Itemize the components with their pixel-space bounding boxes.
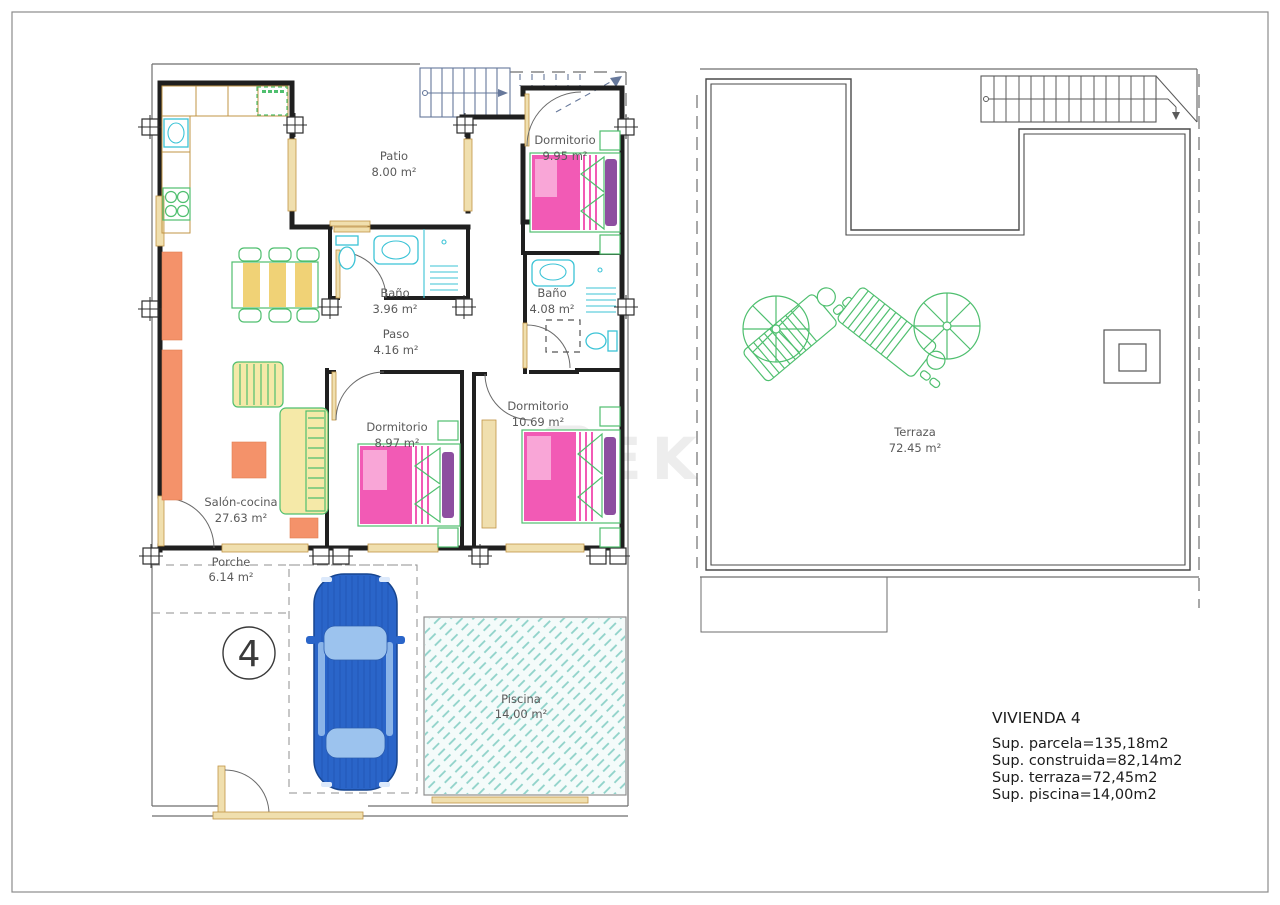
- toilet-icon: [586, 333, 606, 349]
- svg-text:Salón-cocina: Salón-cocina: [204, 495, 277, 509]
- wardrobe: [482, 420, 496, 528]
- summary-line-piscina: Sup. piscina=14,00m2: [992, 787, 1157, 803]
- summary-title: VIVIENDA 4: [992, 709, 1081, 727]
- plan-drawing: EKCE: [0, 0, 1280, 905]
- sink-icon: [374, 236, 418, 264]
- parasol-1: [743, 296, 809, 362]
- svg-text:3.96 m²: 3.96 m²: [372, 302, 417, 316]
- label-piscina: Piscina 14,00 m²: [495, 692, 547, 721]
- svg-text:Porche: Porche: [212, 555, 251, 569]
- svg-text:Baño: Baño: [537, 286, 566, 300]
- sideboard-1: [162, 252, 182, 340]
- svg-text:8.00 m²: 8.00 m²: [371, 165, 416, 179]
- svg-text:8.97 m²: 8.97 m²: [374, 436, 419, 450]
- dining-table: [232, 248, 319, 322]
- unit-number-badge: 4: [223, 627, 275, 679]
- svg-text:Dormitorio: Dormitorio: [507, 399, 568, 413]
- sideboard-2: [162, 350, 182, 500]
- summary-line-terraza: Sup. terraza=72,45m2: [992, 770, 1157, 786]
- svg-text:14,00 m²: 14,00 m²: [495, 707, 547, 721]
- car-windshield: [324, 626, 387, 660]
- svg-text:10.69 m²: 10.69 m²: [512, 415, 564, 429]
- car-rear-window: [326, 728, 385, 758]
- floor-plan-sheet: EKCE: [0, 0, 1280, 905]
- svg-text:9.95 m²: 9.95 m²: [542, 149, 587, 163]
- side-table: [290, 518, 318, 538]
- svg-text:Dormitorio: Dormitorio: [366, 420, 427, 434]
- sofa: [280, 408, 328, 514]
- car-mirror-right: [395, 636, 405, 644]
- car-mirror-left: [306, 636, 316, 644]
- svg-text:6.14 m²: 6.14 m²: [208, 570, 253, 584]
- unit-number: 4: [238, 634, 261, 675]
- svg-text:4.08 m²: 4.08 m²: [529, 302, 574, 316]
- svg-text:Baño: Baño: [380, 286, 409, 300]
- summary-line-construida: Sup. construida=82,14m2: [992, 753, 1182, 769]
- svg-text:72.45 m²: 72.45 m²: [889, 441, 941, 455]
- armchair: [233, 362, 283, 407]
- coffee-table: [232, 442, 266, 478]
- svg-text:4.16 m²: 4.16 m²: [373, 343, 418, 357]
- toilet-icon: [336, 236, 358, 245]
- label-porche: Porche 6.14 m²: [208, 555, 253, 584]
- svg-text:Terraza: Terraza: [893, 425, 936, 439]
- svg-text:Paso: Paso: [383, 327, 410, 341]
- svg-text:27.63 m²: 27.63 m²: [215, 511, 267, 525]
- summary-line-parcela: Sup. parcela=135,18m2: [992, 736, 1169, 752]
- car: [306, 574, 405, 790]
- svg-text:Patio: Patio: [380, 149, 408, 163]
- svg-text:Dormitorio: Dormitorio: [534, 133, 595, 147]
- skylight: [1104, 330, 1160, 383]
- parasol-2: [914, 293, 980, 359]
- svg-text:Piscina: Piscina: [501, 692, 541, 706]
